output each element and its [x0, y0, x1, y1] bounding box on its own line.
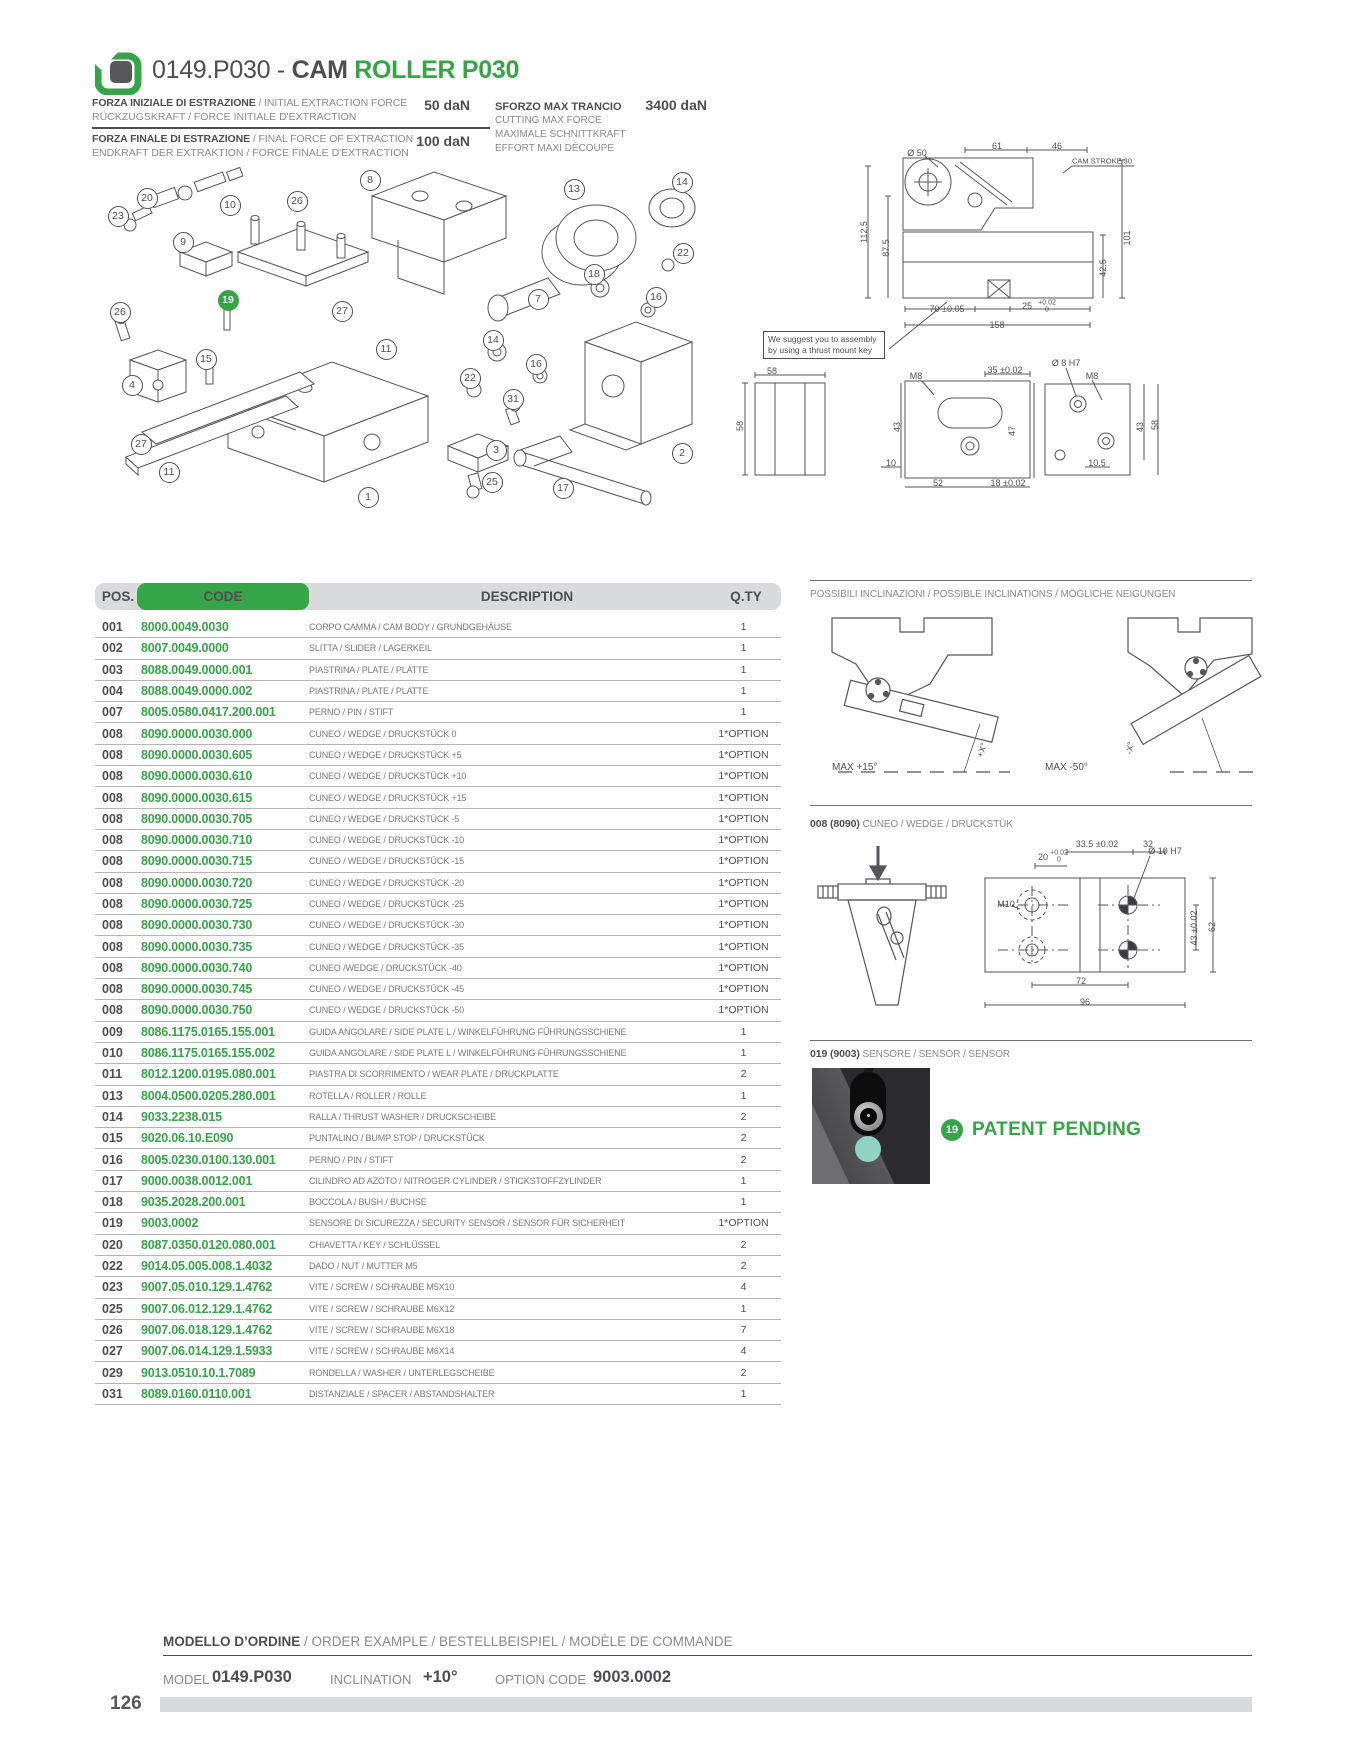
cell-code: 8090.0000.0030.725	[141, 897, 309, 911]
part-callout: 16	[646, 287, 667, 308]
cell-qty: 4	[706, 1281, 781, 1293]
cell-pos: 008	[95, 897, 141, 911]
exploded-view-drawing	[115, 167, 695, 505]
cell-code: 8086.1175.0165.155.001	[141, 1025, 309, 1039]
part-callout: 27	[332, 301, 353, 322]
cell-qty: 1*OPTION	[706, 770, 781, 782]
cell-code: 8090.0000.0030.720	[141, 876, 309, 890]
cell-code: 8005.0230.0100.130.001	[141, 1153, 309, 1167]
table-row: 0088090.0000.0030.745CUNEO / WEDGE / DRU…	[95, 979, 781, 1000]
dimension-label: Ø 50	[907, 148, 927, 158]
part-callout: 2	[672, 443, 693, 464]
dimension-label: M8	[910, 371, 923, 381]
cell-description: PIASTRINA / PLATE / PLATTE	[309, 686, 706, 696]
cell-qty: 2	[706, 1260, 781, 1272]
cell-qty: 1	[706, 1047, 781, 1059]
table-row: 0199003.0002SENSORE DI SICUREZZA / SECUR…	[95, 1213, 781, 1234]
dimension-label: +X°	[975, 741, 989, 758]
dimension-label: 43	[892, 422, 902, 432]
dimension-label: 10	[886, 458, 896, 468]
column-header-pos: POS.	[95, 583, 141, 610]
dimension-label: 58	[735, 421, 745, 431]
cell-description: CUNEO / WEDGE / DRUCKSTÜCK +10	[309, 771, 706, 781]
cell-description: SENSORE DI SICUREZZA / SECURITY SENSOR /…	[309, 1218, 706, 1228]
part-callout: 17	[553, 478, 574, 499]
cell-code: 8090.0000.0030.740	[141, 961, 309, 975]
cell-code: 8090.0000.0030.000	[141, 727, 309, 741]
section-divider	[810, 805, 1252, 806]
cell-code: 8090.0000.0030.745	[141, 982, 309, 996]
page-number: 126	[110, 1693, 142, 1715]
table-row: 0088090.0000.0030.720CUNEO / WEDGE / DRU…	[95, 873, 781, 894]
cell-description: PIASTRINA / PLATE / PLATTE	[309, 665, 706, 675]
cell-pos: 018	[95, 1195, 141, 1209]
cell-qty: 1*OPTION	[706, 1217, 781, 1229]
product-name: ROLLER P030	[348, 56, 519, 84]
dimension-label: 42.5	[1098, 259, 1108, 277]
part-callout: 22	[460, 368, 481, 389]
dimension-label: 46	[1052, 141, 1062, 151]
max-inclination-left-label: MAX +15°	[832, 762, 877, 773]
dimension-label: 0	[1057, 857, 1061, 864]
cell-pos: 015	[95, 1131, 141, 1145]
cell-qty: 1	[706, 642, 781, 654]
table-row: 0088090.0000.0030.000CUNEO / WEDGE / DRU…	[95, 723, 781, 744]
cell-qty: 2	[706, 1068, 781, 1080]
dimension-label: Ø 10 H7	[1148, 846, 1182, 856]
cell-qty: 1	[706, 1026, 781, 1038]
cell-pos: 013	[95, 1089, 141, 1103]
cell-code: 9014.05.005.008.1.4032	[141, 1259, 309, 1273]
cell-pos: 011	[95, 1067, 141, 1081]
part-callout: 15	[196, 349, 217, 370]
cell-pos: 003	[95, 663, 141, 677]
cell-description: CHIAVETTA / KEY / SCHLÜSSEL	[309, 1240, 706, 1250]
dimension-label: M8	[1086, 371, 1099, 381]
column-header-qty: Q.TY	[711, 583, 781, 610]
dimension-label: M10	[997, 899, 1015, 909]
cell-pos: 007	[95, 705, 141, 719]
table-row: 0159020.06.10.E090PUNTALINO / BUMP STOP …	[95, 1128, 781, 1149]
cell-description: DISTANZIALE / SPACER / ABSTANDSHALTER	[309, 1389, 706, 1399]
cell-code: 8004.0500.0205.280.001	[141, 1089, 309, 1103]
dimension-label: 96	[1080, 997, 1090, 1007]
cell-description: PERNO / PIN / STIFT	[309, 707, 706, 717]
table-row: 0088090.0000.0030.705CUNEO / WEDGE / DRU…	[95, 809, 781, 830]
cell-qty: 1	[706, 706, 781, 718]
cell-pos: 031	[95, 1387, 141, 1401]
cell-pos: 001	[95, 620, 141, 634]
table-row: 0138004.0500.0205.280.001ROTELLA / ROLLE…	[95, 1086, 781, 1107]
dimension-label: 61	[992, 141, 1002, 151]
cell-description: CORPO CAMMA / CAM BODY / GRUNDGEHÄUSE	[309, 622, 706, 632]
inclination-label: INCLINATION	[330, 1672, 411, 1687]
cell-description: CUNEO / WEDGE / DRUCKSTÜCK -10	[309, 835, 706, 845]
cell-code: 9007.06.014.129.1.5933	[141, 1344, 309, 1358]
part-callout: 23	[108, 206, 129, 227]
part-callout: 22	[673, 243, 694, 264]
part-callout: 11	[159, 462, 180, 483]
table-row: 0239007.05.010.129.1.4762VITE / SCREW / …	[95, 1277, 781, 1298]
inclination-value: +10°	[423, 1668, 458, 1687]
cell-qty: 2	[706, 1239, 781, 1251]
model-label: MODEL	[163, 1672, 209, 1687]
cell-description: BOCCOLA / BUSH / BUCHSE	[309, 1197, 706, 1207]
cell-qty: 2	[706, 1367, 781, 1379]
table-row: 0028007.0049.0000SLITTA / SLIDER / LAGER…	[95, 638, 781, 659]
part-callout: 11	[376, 339, 397, 360]
cell-pos: 008	[95, 876, 141, 890]
cell-qty: 1	[706, 685, 781, 697]
cell-qty: 1*OPTION	[706, 919, 781, 931]
cell-code: 8088.0049.0000.002	[141, 684, 309, 698]
patent-pending-label: PATENT PENDING	[972, 1119, 1141, 1141]
table-row: 0318089.0160.0110.001DISTANZIALE / SPACE…	[95, 1384, 781, 1405]
dimension-label: 20	[1038, 852, 1048, 862]
parts-table-body: 0018000.0049.0030CORPO CAMMA / CAM BODY …	[95, 617, 781, 1405]
dimension-label: +0.02	[1050, 850, 1068, 857]
table-row: 0179000.0038.0012.001CILINDRO AD AZOTO /…	[95, 1171, 781, 1192]
cell-qty: 1*OPTION	[706, 834, 781, 846]
cell-pos: 027	[95, 1344, 141, 1358]
cell-pos: 008	[95, 727, 141, 741]
max-shear-value: 3400 daN	[646, 97, 707, 113]
cell-code: 8012.1200.0195.080.001	[141, 1067, 309, 1081]
model-value: 0149.P030	[212, 1668, 292, 1687]
cell-code: 8090.0000.0030.605	[141, 748, 309, 762]
cell-qty: 1	[706, 1196, 781, 1208]
table-row: 0048088.0049.0000.002PIASTRINA / PLATE /…	[95, 681, 781, 702]
table-row: 0078005.0580.0417.200.001PERNO / PIN / S…	[95, 702, 781, 723]
dimension-label: 43	[1135, 422, 1145, 432]
cell-qty: 1*OPTION	[706, 749, 781, 761]
cell-qty: 1*OPTION	[706, 1004, 781, 1016]
table-row: 0088090.0000.0030.710CUNEO / WEDGE / DRU…	[95, 830, 781, 851]
dimension-label: 158	[989, 320, 1004, 330]
dimension-label: CAM STROKE 30	[1072, 157, 1132, 166]
cell-code: 9013.0510.10.1.7089	[141, 1366, 309, 1380]
cell-pos: 029	[95, 1366, 141, 1380]
table-row: 0088090.0000.0030.715CUNEO / WEDGE / DRU…	[95, 851, 781, 872]
cell-description: CUNEO / WEDGE / DRUCKSTÜCK -35	[309, 942, 706, 952]
cell-code: 8007.0049.0000	[141, 641, 309, 655]
cell-code: 9000.0038.0012.001	[141, 1174, 309, 1188]
spec-max-shear: SFORZO MAX TRANCIO 3400 daN CUTTING MAX …	[495, 97, 707, 154]
cell-qty: 2	[706, 1154, 781, 1166]
cell-pos: 008	[95, 791, 141, 805]
inclinations-title: POSSIBILI INCLINAZIONI / POSSIBLE INCLIN…	[810, 589, 1175, 600]
part-callout: 14	[483, 330, 504, 351]
cell-pos: 004	[95, 684, 141, 698]
cell-qty: 7	[706, 1324, 781, 1336]
cell-description: CUNEO / WEDGE / DRUCKSTÜCK -30	[309, 920, 706, 930]
cell-code: 8087.0350.0120.080.001	[141, 1238, 309, 1252]
column-header-code: CODE	[137, 583, 309, 610]
cell-pos: 002	[95, 641, 141, 655]
page-title: 0149.P030 - CAM ROLLER P030	[152, 56, 519, 85]
table-row: 0299013.0510.10.1.7089RONDELLA / WASHER …	[95, 1362, 781, 1383]
cell-description: DADO / NUT / MUTTER M5	[309, 1261, 706, 1271]
dimension-label: 58	[1150, 420, 1160, 430]
dimension-label: +0.02	[1038, 300, 1056, 307]
cell-description: VITE / SCREW / SCHRAUBE M5X10	[309, 1282, 706, 1292]
cell-qty: 1	[706, 1303, 781, 1315]
cell-description: VITE / SCREW / SCHRAUBE M6X14	[309, 1346, 706, 1356]
cell-pos: 014	[95, 1110, 141, 1124]
table-row: 0088090.0000.0030.725CUNEO / WEDGE / DRU…	[95, 894, 781, 915]
table-row: 0088090.0000.0030.605CUNEO / WEDGE / DRU…	[95, 745, 781, 766]
table-row: 0108086.1175.0165.155.002GUIDA ANGOLARE …	[95, 1043, 781, 1064]
sensor-led	[855, 1136, 881, 1162]
table-row: 0018000.0049.0030CORPO CAMMA / CAM BODY …	[95, 617, 781, 638]
part-callout: 7	[528, 289, 549, 310]
cell-code: 8090.0000.0030.615	[141, 791, 309, 805]
option-code-value: 9003.0002	[593, 1668, 671, 1687]
part-callout: 26	[287, 191, 308, 212]
cell-description: CUNEO / WEDGE / DRUCKSTÜCK -50	[309, 1005, 706, 1015]
cell-description: VITE / SCREW / SCHRAUBE M6X18	[309, 1325, 706, 1335]
wedge-section-title: 008 (8090) CUNEO / WEDGE / DRUCKSTÜK	[810, 818, 1013, 830]
cell-pos: 008	[95, 854, 141, 868]
sensor-section-title: 019 (9003) SENSORE / SENSOR / SENSOR	[810, 1048, 1010, 1060]
cell-pos: 019	[95, 1216, 141, 1230]
part-callout: 10	[220, 195, 241, 216]
order-example-title: MODELLO D’ORDINE / ORDER EXAMPLE / BESTE…	[163, 1634, 733, 1649]
cell-code: 8090.0000.0030.750	[141, 1003, 309, 1017]
cell-code: 8090.0000.0030.730	[141, 918, 309, 932]
part-callout: 9	[173, 232, 194, 253]
cell-pos: 017	[95, 1174, 141, 1188]
cell-pos: 008	[95, 812, 141, 826]
cell-description: PIASTRA DI SCORRIMENTO / WEAR PLATE / DR…	[309, 1069, 706, 1079]
dimension-label: 58	[767, 366, 777, 376]
cell-code: 9035.2028.200.001	[141, 1195, 309, 1209]
cell-description: GUIDA ANGOLARE / SIDE PLATE L / WINKELFÜ…	[309, 1048, 706, 1058]
dimension-label: 0	[1045, 307, 1049, 314]
cell-code: 8089.0160.0110.001	[141, 1387, 309, 1401]
cell-qty: 1*OPTION	[706, 855, 781, 867]
cell-description: GUIDA ANGOLARE / SIDE PLATE L / WINKELFÜ…	[309, 1027, 706, 1037]
cell-description: CILINDRO AD AZOTO / NITROGER CYLINDER / …	[309, 1176, 706, 1186]
dimension-label: 25	[1022, 301, 1032, 311]
dimension-label: 10.5	[1088, 458, 1106, 468]
cell-code: 9020.06.10.E090	[141, 1131, 309, 1145]
table-row: 0088090.0000.0030.750CUNEO / WEDGE / DRU…	[95, 1000, 781, 1021]
final-force-value: 100 daN	[390, 133, 470, 149]
dimension-label: 62	[1207, 922, 1217, 932]
dimension-label: 101	[1122, 230, 1132, 245]
cell-qty: 1*OPTION	[706, 877, 781, 889]
cell-pos: 008	[95, 833, 141, 847]
cell-qty: 4	[706, 1345, 781, 1357]
cell-qty: 1*OPTION	[706, 941, 781, 953]
cell-qty: 2	[706, 1132, 781, 1144]
part-callout: 1	[358, 487, 379, 508]
parts-table: POS. DESCRIPTION Q.TY CODE 0018000.0049.…	[95, 583, 781, 1405]
cell-pos: 008	[95, 961, 141, 975]
cell-qty: 1	[706, 1388, 781, 1400]
cell-description: CUNEO / WEDGE / DRUCKSTÜCK -15	[309, 856, 706, 866]
cell-description: CUNEO / WEDGE / DRUCKSTÜCK +5	[309, 750, 706, 760]
inclination-right-drawing	[1128, 618, 1261, 772]
table-row: 0088090.0000.0030.615CUNEO / WEDGE / DRU…	[95, 787, 781, 808]
table-row: 0088090.0000.0030.610CUNEO / WEDGE / DRU…	[95, 766, 781, 787]
cell-code: 9003.0002	[141, 1216, 309, 1230]
wedge-profile-drawing	[818, 846, 946, 1005]
cell-code: 8090.0000.0030.610	[141, 769, 309, 783]
cell-pos: 008	[95, 918, 141, 932]
cell-pos: 023	[95, 1280, 141, 1294]
cell-qty: 1*OPTION	[706, 813, 781, 825]
inclination-left-drawing	[832, 618, 1010, 772]
front-view-drawing	[742, 368, 1158, 487]
assembly-note: We suggest you to assembly by using a th…	[763, 331, 885, 359]
cell-pos: 022	[95, 1259, 141, 1273]
cell-code: 8086.1175.0165.155.002	[141, 1046, 309, 1060]
product-code: 0149.P030 -	[152, 56, 292, 84]
table-row: 0149033.2238.015RALLA / THRUST WASHER / …	[95, 1107, 781, 1128]
dimension-label: 70 ±0.05	[930, 304, 965, 314]
part-callout: 31	[503, 389, 524, 410]
cell-description: RONDELLA / WASHER / UNTERLEGSCHEIBE	[309, 1368, 706, 1378]
table-row: 0088090.0000.0030.735CUNEO / WEDGE / DRU…	[95, 936, 781, 957]
dimension-label: 47	[1007, 426, 1017, 436]
part-callout: 18	[584, 264, 605, 285]
cell-qty: 1	[706, 1090, 781, 1102]
table-row: 0088090.0000.0030.730CUNEO / WEDGE / DRU…	[95, 915, 781, 936]
spec-divider	[92, 127, 490, 129]
catalog-page: 0149.P030 - CAM ROLLER P030 FORZA INIZIA…	[0, 0, 1358, 1754]
cell-pos: 008	[95, 940, 141, 954]
cell-qty: 1	[706, 1175, 781, 1187]
cell-pos: 026	[95, 1323, 141, 1337]
dimension-label: 35 ±0.02	[988, 365, 1023, 375]
cell-description: CUNEO /WEDGE / DRUCKSTÜCK -40	[309, 963, 706, 973]
table-row: 0098086.1175.0165.155.001GUIDA ANGOLARE …	[95, 1022, 781, 1043]
dimension-label: -X°	[1124, 741, 1136, 755]
cell-description: CUNEO / WEDGE / DRUCKSTÜCK -25	[309, 899, 706, 909]
cell-qty: 1*OPTION	[706, 792, 781, 804]
part-callout: 26	[110, 302, 131, 323]
cell-qty: 2	[706, 1111, 781, 1123]
cell-description: CUNEO / WEDGE / DRUCKSTÜCK -20	[309, 878, 706, 888]
cell-qty: 1	[706, 621, 781, 633]
table-row: 0088090.0000.0030.740CUNEO /WEDGE / DRUC…	[95, 958, 781, 979]
dimension-label: 52	[933, 478, 943, 488]
cell-description: CUNEO / WEDGE / DRUCKSTÜCK -5	[309, 814, 706, 824]
cell-qty: 1	[706, 664, 781, 676]
cell-code: 8088.0049.0000.001	[141, 663, 309, 677]
cell-code: 9033.2238.015	[141, 1110, 309, 1124]
part-callout: 20	[137, 188, 158, 209]
part-callout: 3	[486, 440, 507, 461]
cell-description: RALLA / THRUST WASHER / DRUCKSCHEIBE	[309, 1112, 706, 1122]
part-callout: 13	[564, 179, 585, 200]
cell-code: 9007.06.018.129.1.4762	[141, 1323, 309, 1337]
part-callout: 27	[131, 434, 152, 455]
cell-pos: 016	[95, 1153, 141, 1167]
side-view-drawing	[865, 147, 1134, 349]
sensor-photo	[812, 1068, 930, 1184]
table-row: 0038088.0049.0000.001PIASTRINA / PLATE /…	[95, 660, 781, 681]
cell-qty: 1*OPTION	[706, 983, 781, 995]
cell-description: ROTELLA / ROLLER / ROLLE	[309, 1091, 706, 1101]
cell-code: 9007.05.010.129.1.4762	[141, 1280, 309, 1294]
initial-force-value: 50 daN	[390, 97, 470, 113]
cell-code: 8090.0000.0030.735	[141, 940, 309, 954]
dimension-label: 87.5	[881, 239, 891, 257]
order-title-underline	[163, 1655, 1252, 1656]
table-row: 0259007.06.012.129.1.4762VITE / SCREW / …	[95, 1299, 781, 1320]
dimension-label: 33.5 ±0.02	[1076, 839, 1118, 849]
patent-part-badge: 19	[941, 1119, 963, 1141]
cell-pos: 008	[95, 982, 141, 996]
cell-qty: 1*OPTION	[706, 728, 781, 740]
cell-description: CUNEO / WEDGE / DRUCKSTÜCK -45	[309, 984, 706, 994]
cell-qty: 1*OPTION	[706, 898, 781, 910]
cell-pos: 008	[95, 1003, 141, 1017]
dimension-label: 43 ±0.02	[1189, 911, 1199, 946]
table-row: 0229014.05.005.008.1.4032DADO / NUT / MU…	[95, 1256, 781, 1277]
cell-code: 8000.0049.0030	[141, 620, 309, 634]
parts-table-header: POS. DESCRIPTION Q.TY CODE	[95, 583, 781, 610]
dimension-label: 32	[1143, 839, 1153, 849]
cell-code: 8090.0000.0030.705	[141, 812, 309, 826]
table-row: 0189035.2028.200.001BOCCOLA / BUSH / BUC…	[95, 1192, 781, 1213]
cell-description: PERNO / PIN / STIFT	[309, 1155, 706, 1165]
table-row: 0279007.06.014.129.1.5933VITE / SCREW / …	[95, 1341, 781, 1362]
cell-description: CUNEO / WEDGE / DRUCKSTÜCK 0	[309, 729, 706, 739]
section-divider	[810, 580, 1252, 581]
table-row: 0208087.0350.0120.080.001CHIAVETTA / KEY…	[95, 1235, 781, 1256]
cell-pos: 025	[95, 1302, 141, 1316]
dimension-label: 18 ±0.02	[991, 478, 1026, 488]
cell-pos: 008	[95, 748, 141, 762]
wedge-dimension-drawing	[985, 849, 1216, 1008]
cell-pos: 020	[95, 1238, 141, 1252]
cell-description: VITE / SCREW / SCHRAUBE M6X12	[309, 1304, 706, 1314]
part-callout: 4	[122, 375, 143, 396]
table-row: 0168005.0230.0100.130.001PERNO / PIN / S…	[95, 1149, 781, 1170]
cell-qty: 1*OPTION	[706, 962, 781, 974]
brand-logo-icon	[95, 50, 143, 95]
cell-code: 8005.0580.0417.200.001	[141, 705, 309, 719]
cell-pos: 009	[95, 1025, 141, 1039]
cell-pos: 008	[95, 769, 141, 783]
dimension-label: 112.5	[859, 221, 869, 243]
section-divider	[810, 1040, 1252, 1041]
footer-bar	[160, 1697, 1252, 1712]
part-callout: 25	[482, 472, 503, 493]
cell-description: PUNTALINO / BUMP STOP / DRUCKSTÜCK	[309, 1133, 706, 1143]
column-header-description: DESCRIPTION	[309, 583, 745, 610]
part-callout: 16	[526, 354, 547, 375]
part-callout: 19	[218, 290, 239, 311]
part-callout: 14	[672, 172, 693, 193]
cell-pos: 010	[95, 1046, 141, 1060]
cell-code: 8090.0000.0030.710	[141, 833, 309, 847]
cell-code: 8090.0000.0030.715	[141, 854, 309, 868]
table-row: 0269007.06.018.129.1.4762VITE / SCREW / …	[95, 1320, 781, 1341]
cell-code: 9007.06.012.129.1.4762	[141, 1302, 309, 1316]
part-callout: 8	[360, 170, 381, 191]
option-code-label: OPTION CODE	[495, 1672, 586, 1687]
table-row: 0118012.1200.0195.080.001PIASTRA DI SCOR…	[95, 1064, 781, 1085]
dimension-label: Ø 8 H7	[1052, 358, 1081, 368]
max-inclination-right-label: MAX -50°	[1045, 762, 1088, 773]
cell-description: CUNEO / WEDGE / DRUCKSTÜCK +15	[309, 793, 706, 803]
cell-description: SLITTA / SLIDER / LAGERKEIL	[309, 643, 706, 653]
